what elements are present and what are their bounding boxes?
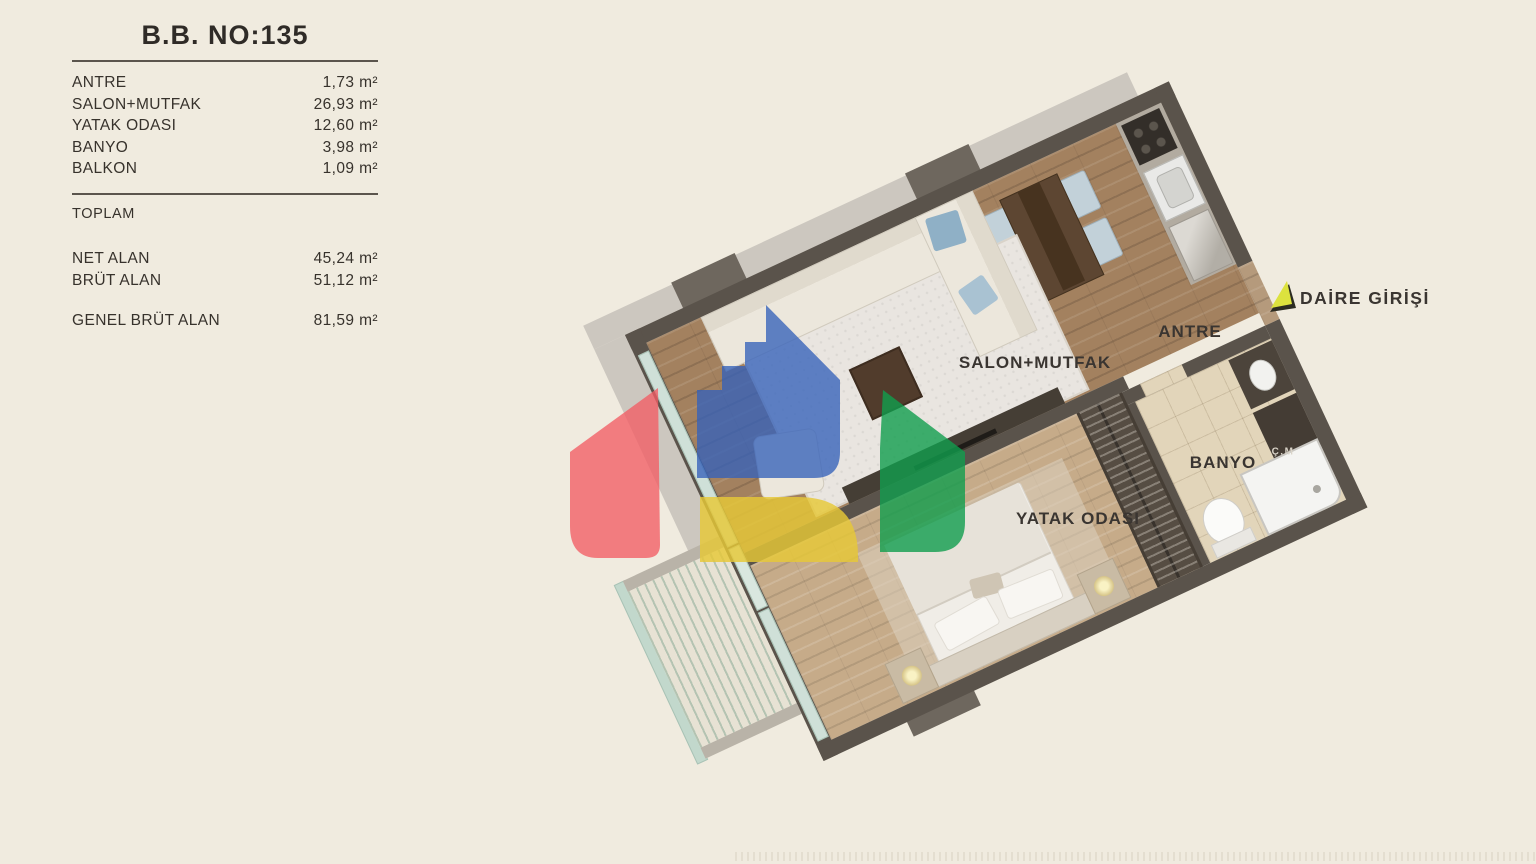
entrance-arrow-icon [1268,280,1298,316]
room-label-yatak: YATAK ODASI [1016,509,1140,529]
room-area-list: ANTRE 1,73 m² SALON+MUTFAK 26,93 m² YATA… [72,72,378,180]
lamp [899,662,926,689]
page: B.B. NO:135 ANTRE 1,73 m² SALON+MUTFAK 2… [0,0,1536,864]
list-item: ANTRE 1,73 m² [72,72,378,94]
room-area: 12,60 m² [314,115,378,137]
entrance-label: DAİRE GİRİŞİ [1300,288,1430,309]
total-value: 45,24 m² [314,248,378,270]
room-label: BANYO [72,137,128,159]
totals-list: NET ALAN 45,24 m² BRÜT ALAN 51,12 m² [72,248,378,291]
page-title: B.B. NO:135 [72,20,378,51]
list-item: BALKON 1,09 m² [72,158,378,180]
washing-machine-label: Ç.M [1272,447,1295,458]
grand-total-value: 81,59 m² [314,310,378,332]
list-item: YATAK ODASI 12,60 m² [72,115,378,137]
developer-logo-watermark [540,280,1020,600]
room-area: 26,93 m² [314,94,378,116]
divider-line [72,60,378,62]
room-area: 1,73 m² [323,72,378,94]
grand-total-row: GENEL BRÜT ALAN 81,59 m² [72,310,378,332]
room-area: 1,09 m² [323,158,378,180]
bottom-texture-strip [735,852,1535,861]
room-label: YATAK ODASI [72,115,176,137]
room-label: SALON+MUTFAK [72,94,201,116]
list-item: BRÜT ALAN 51,12 m² [72,270,378,292]
logo-house-blue [697,305,840,478]
room-label-antre: ANTRE [1158,322,1222,342]
list-item: NET ALAN 45,24 m² [72,248,378,270]
lamp [1091,573,1118,600]
logo-house-green [880,390,965,552]
vanity-sink [1244,355,1281,395]
room-label-salon: SALON+MUTFAK [959,353,1111,373]
room-label-banyo: BANYO [1190,453,1256,473]
room-label: BALKON [72,158,137,180]
section-heading: TOPLAM [72,206,135,222]
list-item: SALON+MUTFAK 26,93 m² [72,94,378,116]
divider-line [72,193,378,195]
total-value: 51,12 m² [314,270,378,292]
logo-house-red [570,388,660,558]
total-label: NET ALAN [72,248,150,270]
room-area: 3,98 m² [323,137,378,159]
total-label: BRÜT ALAN [72,270,161,292]
grand-total-label: GENEL BRÜT ALAN [72,310,220,332]
sink-basin [1155,165,1196,209]
list-item: BANYO 3,98 m² [72,137,378,159]
shower-drain [1312,484,1323,495]
logo-house-yellow [700,497,858,562]
room-label: ANTRE [72,72,127,94]
